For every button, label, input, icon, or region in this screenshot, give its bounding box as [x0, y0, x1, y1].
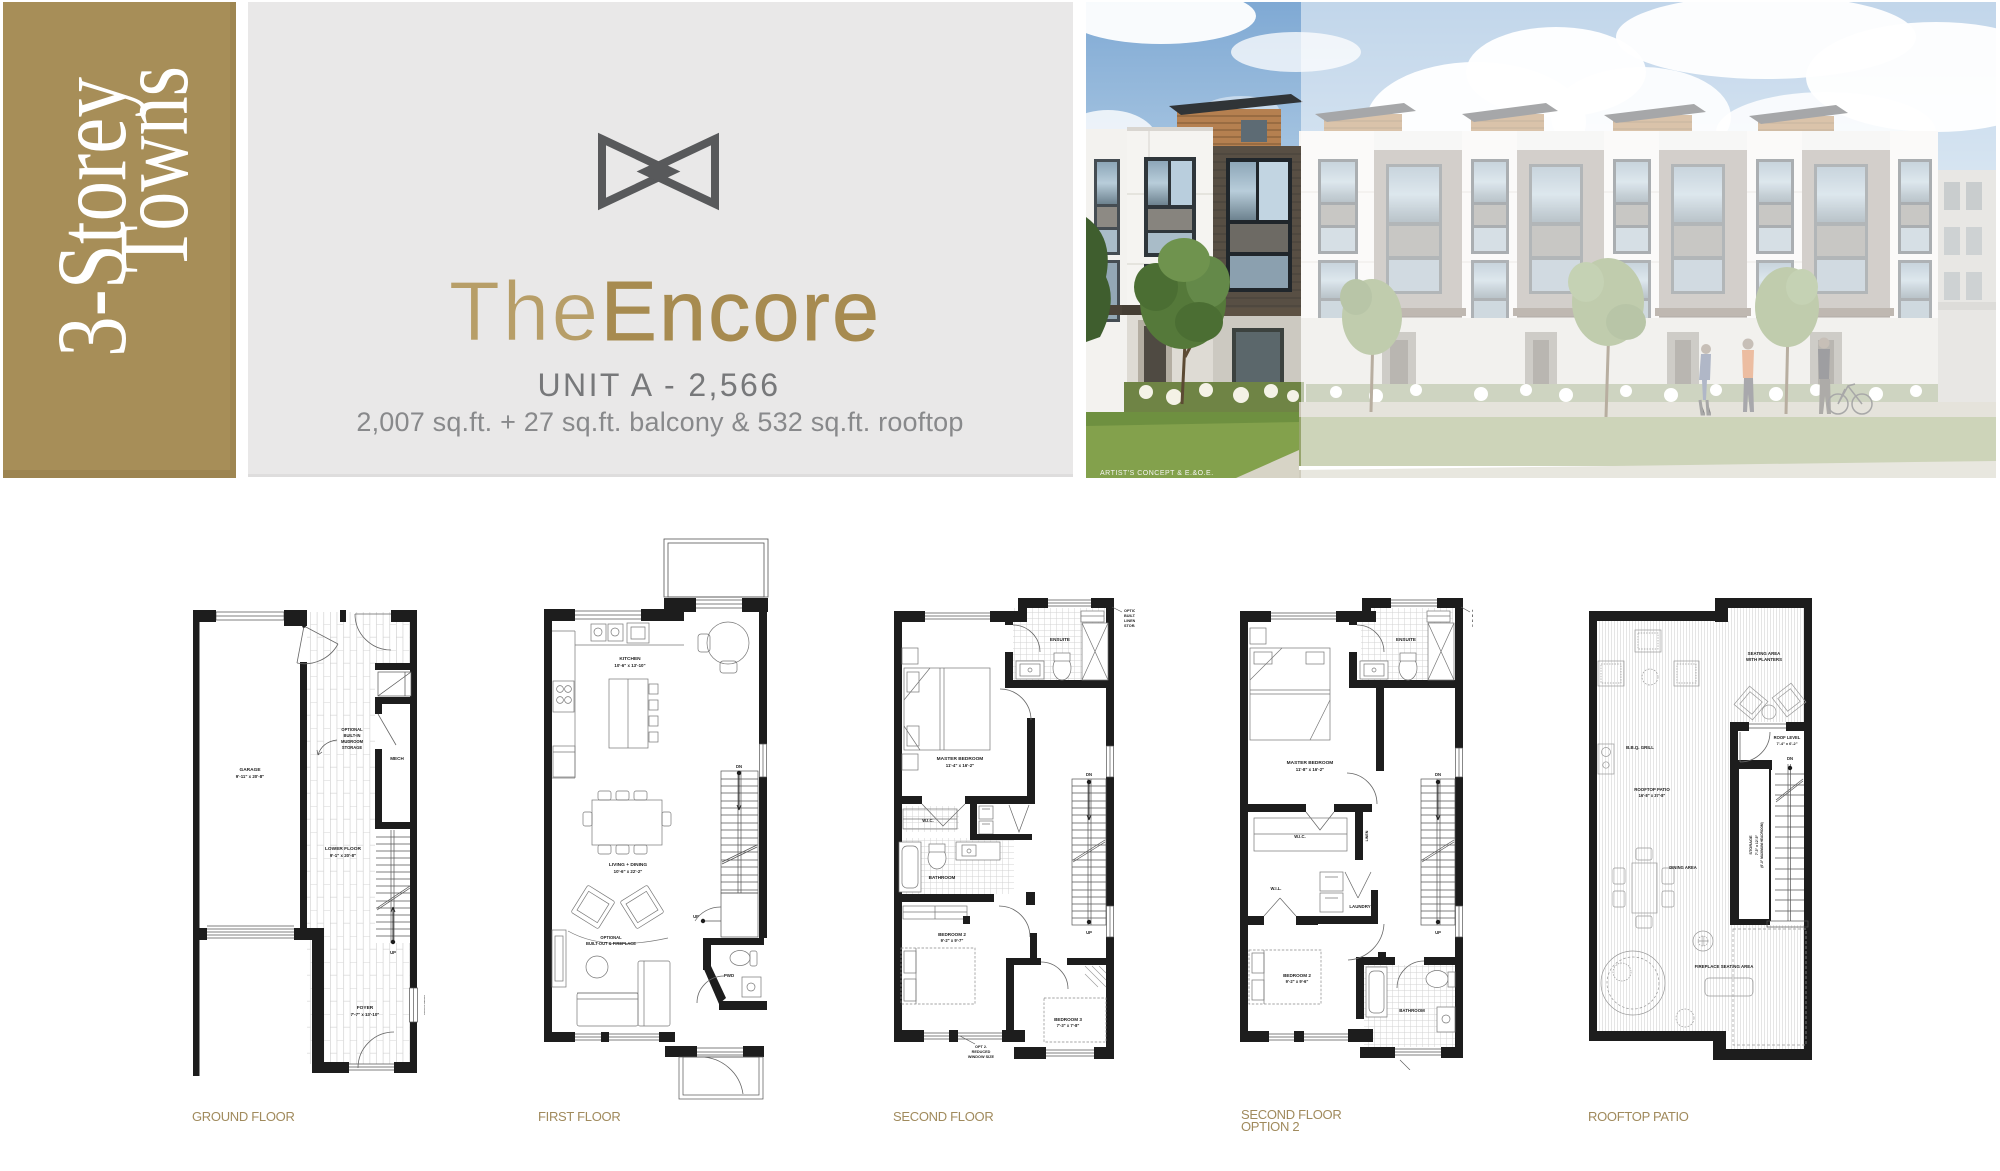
svg-text:OPTIONAL: OPTIONAL — [1472, 609, 1473, 613]
svg-text:10'-6" x 22'-2": 10'-6" x 22'-2" — [614, 869, 643, 874]
svg-text:9'-11" x 20'-8": 9'-11" x 20'-8" — [236, 774, 264, 779]
svg-text:B.B.Q. GRILL: B.B.Q. GRILL — [1626, 745, 1654, 750]
svg-text:STORAGE: STORAGE — [1472, 624, 1473, 628]
svg-text:ROOF LEVEL: ROOF LEVEL — [1774, 735, 1801, 740]
svg-text:TheEncore: TheEncore — [449, 264, 882, 358]
svg-text:UP: UP — [1086, 930, 1092, 935]
svg-text:DINING AREA: DINING AREA — [1669, 865, 1697, 870]
svg-text:UP: UP — [390, 950, 396, 955]
svg-text:FOYER: FOYER — [357, 1005, 374, 1011]
svg-text:10'-6" x 13'-10": 10'-6" x 13'-10" — [614, 663, 645, 668]
svg-text:16'-8" x 37'-8": 16'-8" x 37'-8" — [1639, 793, 1666, 798]
svg-text:BEDROOM 3: BEDROOM 3 — [1054, 1017, 1082, 1022]
svg-text:ENSUITE: ENSUITE — [1396, 637, 1416, 642]
svg-text:OPTIONAL: OPTIONAL — [341, 727, 363, 732]
svg-text:7'-7" x 13'-10": 7'-7" x 13'-10" — [351, 1012, 380, 1017]
svg-text:LOWER FLOOR: LOWER FLOOR — [325, 846, 362, 852]
svg-text:BUILT-OUT & FIREPLACE: BUILT-OUT & FIREPLACE — [586, 941, 636, 946]
svg-text:9'-1" x 20'-8": 9'-1" x 20'-8" — [330, 853, 356, 858]
svg-text:MASTER BEDROOM: MASTER BEDROOM — [1287, 760, 1334, 766]
svg-text:7'-3" x 7'-8": 7'-3" x 7'-8" — [1057, 1023, 1080, 1028]
svg-text:BUILT-IN: BUILT-IN — [1124, 614, 1135, 618]
svg-text:WINDOW SIZE: WINDOW SIZE — [968, 1055, 995, 1059]
svg-text:WITH PLANTERS: WITH PLANTERS — [1746, 657, 1782, 662]
svg-text:BATHROOM: BATHROOM — [929, 875, 956, 880]
svg-text:KITCHEN: KITCHEN — [619, 656, 641, 662]
svg-text:OPT 2.: OPT 2. — [975, 1045, 987, 1049]
svg-text:BATHROOM: BATHROOM — [1399, 1008, 1425, 1013]
svg-text:LAUNDRY: LAUNDRY — [1349, 904, 1370, 909]
svg-text:2,007 sq.ft. + 27 sq.ft. balco: 2,007 sq.ft. + 27 sq.ft. balcony & 532 s… — [356, 407, 963, 437]
svg-text:STORAGE: STORAGE — [1748, 835, 1753, 855]
svg-text:MUDROOM: MUDROOM — [423, 995, 425, 1014]
svg-text:Towns: Towns — [98, 66, 209, 273]
svg-text:OPTIONAL: OPTIONAL — [600, 935, 622, 940]
svg-text:(6'-0" MAXIMUM HEADROOM): (6'-0" MAXIMUM HEADROOM) — [1760, 822, 1764, 867]
svg-text:FIREPLACE SEATING AREA: FIREPLACE SEATING AREA — [1695, 964, 1755, 969]
svg-text:ENSUITE: ENSUITE — [1050, 637, 1070, 642]
svg-text:MECH: MECH — [390, 756, 404, 761]
svg-text:W.I.C.: W.I.C. — [1294, 834, 1305, 839]
svg-text:7'-3" x 12'-5": 7'-3" x 12'-5" — [1755, 834, 1759, 855]
svg-text:11'-8" x 16'-2": 11'-8" x 16'-2" — [1296, 767, 1324, 772]
svg-text:9'-2" x 9'-6": 9'-2" x 9'-6" — [1286, 979, 1309, 984]
svg-text:DN: DN — [736, 764, 742, 769]
svg-text:LINEN: LINEN — [1124, 619, 1135, 623]
svg-text:W.I.L.: W.I.L. — [1271, 886, 1282, 891]
svg-text:PWD: PWD — [724, 973, 734, 978]
svg-text:GARAGE: GARAGE — [239, 767, 261, 773]
svg-text:MASTER BEDROOM: MASTER BEDROOM — [937, 756, 984, 762]
svg-text:ROOFTOP PATIO: ROOFTOP PATIO — [1634, 787, 1670, 792]
svg-text:7'-4" x 6'-2": 7'-4" x 6'-2" — [1776, 741, 1797, 746]
svg-text:STORAGE: STORAGE — [1124, 624, 1135, 628]
svg-text:DN: DN — [1435, 772, 1441, 777]
svg-text:9'-2" x 9'-7": 9'-2" x 9'-7" — [941, 938, 964, 943]
svg-text:W.I.C.: W.I.C. — [922, 818, 933, 823]
svg-text:UNIT A - 2,566: UNIT A - 2,566 — [538, 367, 781, 403]
svg-text:REDUCED: REDUCED — [972, 1050, 991, 1054]
svg-text:DN: DN — [1787, 756, 1793, 761]
svg-text:LIVING + DINING: LIVING + DINING — [609, 862, 648, 868]
svg-text:SEATING AREA: SEATING AREA — [1748, 651, 1782, 656]
svg-text:BUILT-IN: BUILT-IN — [1472, 614, 1473, 618]
svg-text:MUDROOM: MUDROOM — [341, 739, 364, 744]
svg-text:LINEN: LINEN — [1472, 619, 1473, 623]
svg-text:STORAGE: STORAGE — [342, 745, 362, 750]
svg-text:LINEN: LINEN — [1365, 830, 1369, 841]
svg-text:BEDROOM 2: BEDROOM 2 — [938, 932, 966, 937]
svg-text:DN: DN — [1086, 772, 1092, 777]
svg-text:11'-4" x 16'-2": 11'-4" x 16'-2" — [946, 763, 974, 768]
svg-text:UP: UP — [1435, 930, 1441, 935]
svg-text:BEDROOM 2: BEDROOM 2 — [1283, 973, 1311, 978]
svg-text:OPTIONAL: OPTIONAL — [1124, 609, 1135, 613]
svg-text:BUILT-IN: BUILT-IN — [344, 733, 361, 738]
svg-text:ARTIST'S CONCEPT & E.&O.E.: ARTIST'S CONCEPT & E.&O.E. — [1100, 470, 1214, 477]
